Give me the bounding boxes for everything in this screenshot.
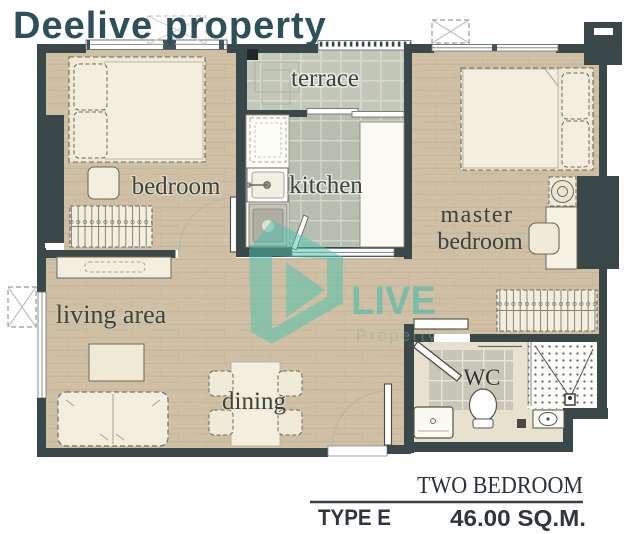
svg-text:bedroom: bedroom (132, 173, 221, 200)
svg-text:TYPE E: TYPE E (318, 505, 391, 530)
svg-text:kitchen: kitchen (289, 172, 363, 199)
svg-text:bedroom: bedroom (437, 229, 523, 255)
svg-text:Deelive property: Deelive property (13, 5, 327, 47)
svg-text:WC: WC (463, 365, 500, 390)
svg-text:living area: living area (56, 300, 167, 329)
svg-text:master: master (441, 202, 514, 228)
svg-text:LIVE: LIVE (351, 279, 436, 323)
svg-text:TWO BEDROOM: TWO BEDROOM (417, 473, 583, 499)
svg-text:dining: dining (222, 388, 286, 415)
svg-text:46.00 SQ.M.: 46.00 SQ.M. (450, 505, 586, 531)
svg-text:terrace: terrace (291, 65, 359, 92)
